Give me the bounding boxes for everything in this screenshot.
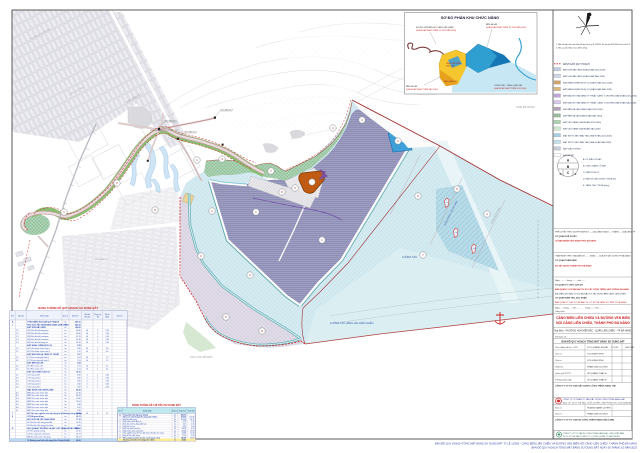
svg-text:MẶT NƯỚC NEO ĐẬU TÀU (GIAI ĐOẠ: MẶT NƯỚC NEO ĐẬU TÀU (GIAI ĐOẠN SAU 2030… [563, 141, 612, 144]
svg-text:ha: ha [65, 333, 67, 335]
svg-text:1: 1 [97, 386, 98, 388]
svg-text:(2022-2030): (2022-2030) [446, 66, 455, 68]
svg-text:ha: ha [65, 378, 67, 380]
svg-text:ha: ha [65, 351, 67, 353]
svg-text:0.7: 0.7 [106, 413, 109, 415]
svg-text:4.92: 4.92 [77, 407, 81, 409]
svg-text:MN4 Khu nước trước bến: MN4 Khu nước trước bến [27, 400, 48, 403]
svg-text:3: 3 [97, 336, 98, 338]
svg-text:0.1: 0.1 [106, 366, 109, 368]
svg-text:6.5: 6.5 [16, 404, 19, 406]
svg-text:Chủ trì: Chủ trì [555, 413, 562, 416]
svg-text:2.04: 2.04 [105, 330, 109, 332]
svg-text:Chủ trì: Chủ trì [555, 359, 562, 362]
svg-text:4.78: 4.78 [77, 344, 81, 347]
svg-text:47.27: 47.27 [76, 434, 81, 436]
svg-text:ha: ha [65, 392, 67, 394]
svg-text:9.48: 9.48 [77, 404, 81, 406]
svg-text:5: 5 [87, 380, 88, 382]
svg-text:5.4: 5.4 [16, 383, 19, 385]
svg-text:ĐẤT HÀNH CHÍNH DỊCH VỤ (GIAI Đ: ĐẤT HÀNH CHÍNH DỊCH VỤ (GIAI ĐOẠN 2022-2… [563, 82, 613, 85]
svg-text:ha: ha [65, 434, 67, 436]
svg-text:2: 2 [97, 360, 98, 362]
svg-text:86.38: 86.38 [76, 389, 81, 391]
svg-text:ĐẤT CÂY XANH CÁCH LY: ĐẤT CÂY XANH CÁCH LY [27, 371, 51, 374]
svg-text:2.66: 2.66 [77, 348, 81, 350]
svg-text:1.1: 1.1 [16, 330, 19, 332]
svg-text:SL2 Bến sà lan số 2: SL2 Bến sà lan số 2 [27, 368, 43, 371]
svg-text:2.21: 2.21 [77, 369, 81, 371]
svg-text:6.4: 6.4 [16, 401, 19, 403]
svg-text:0.05: 0.05 [105, 383, 109, 385]
svg-text:ĐẤT KHO BÃI CẢNG (GIAI ĐOẠN 20: ĐẤT KHO BÃI CẢNG (GIAI ĐOẠN 2022-2030) [563, 68, 606, 71]
svg-text:ha: ha [65, 425, 67, 427]
svg-text:Tỷ lệ (%): Tỷ lệ (%) [188, 409, 195, 412]
svg-text:ha: ha [65, 360, 67, 362]
svg-text:146.68: 146.68 [75, 427, 81, 430]
svg-text:3.2: 3.2 [16, 360, 19, 362]
svg-text:HC2 Khu hành chính cảng 2: HC2 Khu hành chính cảng 2 [27, 350, 50, 353]
svg-text:KB1 Khu kho bãi tổng hợp: KB1 Khu kho bãi tổng hợp [27, 329, 48, 332]
svg-text:A. KÝ HIỆU LÔ ĐẤT: A. KÝ HIỆU LÔ ĐẤT [583, 158, 602, 161]
svg-text:HC1 Khu hành chính cảng 1: HC1 Khu hành chính cảng 1 [27, 347, 50, 350]
svg-text:ĐẤT BẾN SÀ LAN: ĐẤT BẾN SÀ LAN [27, 362, 44, 365]
svg-text:3: 3 [97, 342, 98, 344]
svg-text:6.6: 6.6 [16, 407, 19, 409]
svg-text:IV. Đường ven biển nối cảng Li: IV. Đường ven biển nối cảng Liên Chiểu (… [27, 439, 69, 442]
svg-text:KT2 Khu hạ tầng kỹ thuật 2: KT2 Khu hạ tầng kỹ thuật 2 [27, 359, 49, 362]
svg-text:1.53: 1.53 [77, 360, 81, 362]
svg-text:1: 1 [97, 383, 98, 385]
svg-text:3: 3 [97, 330, 98, 332]
svg-text:CƠ QUAN TỔ CHỨC LẬP QH:: CƠ QUAN TỔ CHỨC LẬP QH: [555, 284, 584, 287]
svg-text:1.3: 1.3 [16, 336, 19, 338]
svg-text:Ghi chú: Ghi chú [117, 316, 123, 318]
svg-text:MẶT NƯỚC NEO ĐẬU TÀU (GIAI ĐOẠ: MẶT NƯỚC NEO ĐẬU TÀU (GIAI ĐOẠN 2022-203… [563, 134, 612, 137]
svg-text:60: 60 [86, 339, 88, 341]
svg-text:BẢNG THỐNG KÊ CHỈ TIÊU SỬ DỤNG: BẢNG THỐNG KÊ CHỈ TIÊU SỬ DỤNG ĐẤT [132, 404, 181, 407]
svg-text:B. CHỨC NĂNG LÔ ĐẤT: B. CHỨC NĂNG LÔ ĐẤT [583, 165, 607, 168]
svg-text:ĐƯỜNG VEN BIỂN NỐI CẢNG LIÊN C: ĐƯỜNG VEN BIỂN NỐI CẢNG LIÊN CHIỂU [416, 26, 454, 29]
svg-text:4.1: 4.1 [16, 366, 19, 368]
svg-text:ha: ha [65, 345, 67, 347]
svg-text:1: 1 [97, 369, 98, 371]
svg-text:3.6: 3.6 [106, 351, 109, 353]
svg-text:DK1 Đê kè chắn sóng phía Bắc: DK1 Đê kè chắn sóng phía Bắc [27, 421, 52, 424]
svg-text:BAN QUẢN LÝ CÁC DỰ ÁN ĐẦU TƯ C: BAN QUẢN LÝ CÁC DỰ ÁN ĐẦU TƯ CƠ SỞ HẠ TẦ… [555, 301, 627, 304]
svg-text:ha: ha [65, 410, 67, 412]
svg-text:40: 40 [86, 357, 88, 359]
svg-text:40.36: 40.36 [76, 339, 81, 341]
svg-text:CÔNG TY CP TƯ VẤN XD CÔNG TRÌN: CÔNG TY CP TƯ VẤN XD CÔNG TRÌNH HÀNG HẢI… [563, 432, 624, 435]
svg-text:UỶ BAN NHÂN DÂN THÀNH PHỐ ĐÀ N: UỶ BAN NHÂN DÂN THÀNH PHỐ ĐÀ NẴNG [555, 240, 597, 243]
svg-text:15.86: 15.86 [76, 398, 81, 400]
svg-text:KB4 Khu kho bãi container: KB4 Khu kho bãi container [27, 338, 49, 341]
svg-text:ha: ha [65, 398, 67, 400]
svg-text:2. Hệ cao độ: Nhà nước (Hòn Dấ: 2. Hệ cao độ: Nhà nước (Hòn Dấu). [556, 47, 588, 50]
svg-text:BẾN SÀ LAN: BẾN SÀ LAN [486, 23, 498, 26]
svg-text:Chủ trì: Chủ trì [555, 407, 562, 410]
svg-text:5.2: 5.2 [16, 378, 19, 380]
svg-text:ha: ha [65, 431, 67, 433]
svg-text:40: 40 [86, 360, 88, 362]
svg-text:E: E [575, 172, 577, 176]
svg-text:CX3 Cây xanh 3: CX3 Cây xanh 3 [27, 380, 40, 382]
svg-text:MN1 Khu nước trước bến: MN1 Khu nước trước bến [27, 391, 48, 394]
svg-text:CX Khu cây xanh cảnh quan: CX Khu cây xanh cảnh quan [27, 433, 50, 436]
svg-text:5: 5 [87, 386, 88, 388]
svg-text:MN6 Khu nước trước bến: MN6 Khu nước trước bến [27, 406, 48, 409]
svg-text:1.2: 1.2 [106, 357, 109, 359]
svg-text:2: 2 [97, 357, 98, 359]
svg-text:1.2: 1.2 [106, 360, 109, 362]
svg-text:(GIAI ĐOẠN PHÁT TRIỂN 2022-203: (GIAI ĐOẠN PHÁT TRIỂN 2022-2030) [494, 87, 527, 90]
svg-text:ha: ha [65, 366, 67, 368]
svg-text:21.76: 21.76 [76, 392, 81, 394]
svg-text:2.2: 2.2 [16, 351, 19, 353]
svg-text:ĐẤT GIAO THÔNG: ĐẤT GIAO THÔNG [563, 148, 581, 151]
svg-text:Thiết kế: Thiết kế [555, 366, 564, 369]
svg-text:RANH GIỚI QUY HOẠCH: RANH GIỚI QUY HOẠCH [563, 63, 590, 66]
svg-text:XD (%): XD (%) [84, 317, 90, 319]
svg-text:ha: ha [65, 389, 67, 391]
svg-text:ĐẠI DIỆN CHỦ ĐẦU TƯ DỰ ÁN ĐẦU: ĐẠI DIỆN CHỦ ĐẦU TƯ DỰ ÁN ĐẦU TƯ XÂY DỰN… [555, 293, 627, 296]
svg-text:ĐƯỜNG NGUYỄN VĂN CỪ: ĐƯỜNG NGUYỄN VĂN CỪ [150, 129, 178, 132]
svg-text:0.05: 0.05 [105, 380, 109, 382]
svg-text:56.11: 56.11 [76, 416, 80, 418]
svg-text:CẢNG BIỂN LIÊN CHIỂU VÀ ĐƯỜNG: CẢNG BIỂN LIÊN CHIỂU VÀ ĐƯỜNG VEN BIỂN [556, 315, 630, 320]
svg-text:2.04: 2.04 [105, 336, 109, 338]
svg-text:ha: ha [65, 383, 67, 385]
svg-text:1: 1 [97, 378, 98, 380]
svg-text:5: 5 [87, 383, 88, 385]
svg-text:ha: ha [65, 363, 67, 365]
svg-text:KHU QUẢNG TRƯỜNG VÀ ĐẤT CÂY XA: KHU QUẢNG TRƯỜNG VÀ ĐẤT CÂY XANH NGOÀI C… [27, 427, 79, 430]
svg-text:0.05: 0.05 [105, 375, 109, 377]
svg-text:CẢNG LIÊN CHIỂU: CẢNG LIÊN CHIỂU [446, 62, 462, 65]
svg-text:Tầng cao: Tầng cao [94, 313, 101, 316]
svg-text:MN Khu mặt nước cảnh quan: MN Khu mặt nước cảnh quan [27, 436, 51, 439]
svg-text:5.5: 5.5 [16, 386, 19, 388]
svg-text:Chủ nhiệm đồ án KTS: Chủ nhiệm đồ án KTS [555, 346, 578, 349]
svg-text:3.32: 3.32 [77, 386, 81, 388]
svg-text:D: D [560, 172, 562, 176]
svg-text:CÔNG TY CP TƯ VẤN XD CÔNG TRÌN: CÔNG TY CP TƯ VẤN XD CÔNG TRÌNH HÀNG HẢI… [555, 419, 614, 422]
svg-text:1: 1 [97, 375, 98, 377]
svg-text:KB2 Khu kho bãi container: KB2 Khu kho bãi container [27, 332, 49, 335]
svg-text:Diện tích: Diện tích [179, 409, 186, 412]
svg-text:NỐI CẢNG LIÊN CHIỂU, THÀNH PHỐ: NỐI CẢNG LIÊN CHIỂU, THÀNH PHỐ ĐÀ NẴNG [556, 320, 630, 325]
svg-text:STT: STT [11, 316, 14, 318]
svg-text:10.45: 10.45 [76, 422, 81, 424]
svg-text:17.10: 17.10 [76, 419, 81, 421]
svg-text:3: 3 [97, 339, 98, 341]
svg-text:PHẠM VĂN CƯƠNG: PHẠM VĂN CƯƠNG [587, 366, 608, 369]
svg-text:KHU VỰC XÂY DỰNG BẾN CẢNG LIÊN: KHU VỰC XÂY DỰNG BẾN CẢNG LIÊN CHIỂU [27, 323, 69, 326]
svg-text:4.2: 4.2 [16, 369, 19, 371]
svg-text:ĐẤT ĐẦU MỐI HẠ TẦNG KỸ THUẬT C: ĐẤT ĐẦU MỐI HẠ TẦNG KỸ THUẬT CẢNG T.CHUY… [563, 101, 637, 104]
svg-text:SỞ XÂY DỰNG THÀNH PHỐ ĐÀ NẴNG: SỞ XÂY DỰNG THÀNH PHỐ ĐÀ NẴNG [555, 265, 592, 268]
svg-text:CÔNG TY CỔ PHẦN TƯ VẤN XÂY DỰN: CÔNG TY CỔ PHẦN TƯ VẤN XÂY DỰNG CÔNG TRÌ… [563, 398, 625, 401]
svg-text:2.04: 2.04 [105, 339, 109, 341]
svg-text:Quản lý KT P.TP: Quản lý KT P.TP [555, 372, 572, 375]
svg-text:ha: ha [65, 422, 67, 424]
svg-text:Đơn vị: Đơn vị [173, 410, 179, 412]
svg-text:18.42: 18.42 [76, 395, 81, 397]
svg-text:5: 5 [87, 378, 88, 380]
svg-text:Hệ số: Hệ số [105, 313, 109, 316]
svg-text:1.5: 1.5 [16, 342, 19, 344]
svg-text:DK2 Đê kè chắn sóng phía Nam: DK2 Đê kè chắn sóng phía Nam [27, 424, 53, 427]
svg-text:18.16: 18.16 [76, 372, 81, 374]
svg-text:3: 3 [97, 333, 98, 335]
svg-text:ha: ha [65, 386, 67, 388]
svg-text:1.2: 1.2 [16, 333, 19, 335]
svg-text:3.82: 3.82 [77, 378, 81, 380]
svg-text:40: 40 [86, 348, 88, 350]
svg-text:PHÊ DUYỆT THEO QUYẾT ĐỊNH SỐ .: PHÊ DUYỆT THEO QUYẾT ĐỊNH SỐ ....../QĐ-U… [555, 231, 636, 234]
svg-text:60: 60 [86, 336, 88, 338]
svg-text:433.06: 433.06 [75, 323, 81, 326]
svg-text:ĐẤT BẾN SÀ LAN (GIAI ĐOẠN 2022: ĐẤT BẾN SÀ LAN (GIAI ĐOẠN 2022-2030) [563, 108, 603, 111]
svg-text:12.64: 12.64 [76, 401, 81, 403]
svg-text:450.16: 450.16 [75, 320, 81, 323]
svg-text:2.12: 2.12 [77, 351, 81, 353]
svg-text:53.08: 53.08 [76, 413, 81, 415]
svg-text:ha: ha [65, 419, 67, 421]
svg-text:Thành phần: Thành phần [143, 409, 152, 412]
svg-text:Công trình:: Công trình: [555, 310, 565, 313]
svg-text:KHU VỰC ĐÊ, KÈ CHẮN SÓNG: KHU VỰC ĐÊ, KÈ CHẮN SÓNG [27, 418, 55, 421]
svg-text:NC Khu vực nghiên cứu xây dựn: NC Khu vực nghiên cứu xây dựng khu liên … [27, 412, 82, 415]
svg-text:2.21: 2.21 [77, 366, 81, 368]
svg-text:ĐẤT CÂY XANH (GIAI ĐOẠN SAU 20: ĐẤT CÂY XANH (GIAI ĐOẠN SAU 2030) [563, 128, 601, 131]
svg-text:CX1 Cây xanh 1: CX1 Cây xanh 1 [27, 375, 40, 377]
svg-text:LƯU QUANG KHOÁT C.TỊCH: LƯU QUANG KHOÁT C.TỊCH [587, 346, 619, 349]
svg-text:LƯU ĐÌNH VINH: LƯU ĐÌNH VINH [587, 359, 604, 362]
svg-text:ĐẤT HÀNH CHÍNH DỊCH VỤ (GIAI Đ: ĐẤT HÀNH CHÍNH DỊCH VỤ (GIAI ĐOẠN SAU 20… [563, 88, 612, 91]
svg-text:4.06: 4.06 [77, 375, 81, 377]
svg-text:ha: ha [65, 357, 67, 359]
svg-text:NÚT GIAO SỐ 3: NÚT GIAO SỐ 3 [185, 130, 198, 133]
svg-text:ĐẤT ĐẦU MỐI HẠ TẦNG KỸ THUẬT C: ĐẤT ĐẦU MỐI HẠ TẦNG KỸ THUẬT CẢNG T.CHUY… [563, 95, 637, 98]
svg-text:CÔNG TY CP TƯ VẤN XÂY DỰNG CÔN: CÔNG TY CP TƯ VẤN XÂY DỰNG CÔNG TRÌNH HÀ… [555, 385, 616, 388]
svg-text:QT Khu quảng trường: QT Khu quảng trường [27, 430, 45, 433]
svg-text:9: 9 [97, 348, 98, 350]
svg-text:60: 60 [86, 333, 88, 335]
svg-text:ha: ha [65, 404, 67, 406]
svg-text:6.2: 6.2 [16, 395, 19, 397]
svg-text:ha: ha [65, 428, 67, 430]
svg-text:0.1: 0.1 [106, 369, 109, 371]
svg-text:ha: ha [65, 354, 67, 356]
svg-text:ha: ha [65, 407, 67, 409]
svg-text:CX5 Cây xanh 5: CX5 Cây xanh 5 [27, 386, 40, 388]
svg-text:Đường ven biển nối cảng Liên C: Đường ven biển nối cảng Liên Chiểu [123, 439, 154, 442]
svg-text:ha: ha [65, 336, 67, 338]
svg-text:ha: ha [174, 440, 176, 442]
svg-text:STT: STT [118, 410, 121, 412]
svg-text:GHI CHÚ: GHI CHÚ [625, 346, 635, 349]
svg-text:CƠ QUAN PHÊ DUYỆT:: CƠ QUAN PHÊ DUYỆT: [555, 235, 577, 238]
svg-text:6.65: 6.65 [77, 425, 81, 427]
svg-text:Tên bản vẽ:: Tên bản vẽ: [555, 336, 567, 339]
svg-text:3.40: 3.40 [77, 383, 81, 385]
svg-text:3.56: 3.56 [77, 380, 81, 382]
svg-text:21.10: 21.10 [76, 431, 81, 433]
svg-text:P.Tổng Giám đốc: P.Tổng Giám đốc [555, 379, 573, 382]
svg-text:KT1 Khu hạ tầng kỹ thuật 1: KT1 Khu hạ tầng kỹ thuật 1 [27, 356, 49, 359]
svg-text:BAN QUẢN LÝ DỰ ÁN ĐẦU TƯ XD CÁ: BAN QUẢN LÝ DỰ ÁN ĐẦU TƯ XD CÁC CÔNG TRÌ… [555, 288, 630, 291]
svg-text:6.1: 6.1 [16, 392, 19, 394]
svg-text:10: 10 [86, 366, 88, 368]
svg-text:Ngày ........... tháng .......: Ngày ........... tháng ........ năm ....… [555, 279, 586, 282]
svg-text:5: 5 [87, 375, 88, 377]
svg-text:BẢN ĐỒ QUY HOẠCH TỔNG MẶT BẰNG: BẢN ĐỒ QUY HOẠCH TỔNG MẶT BẰNG SỬ DỤNG Đ… [561, 341, 625, 344]
svg-text:LÊ QUANG THẠCH: LÊ QUANG THẠCH [587, 372, 607, 375]
svg-text:1. Bản đồ lập trên nền bản đồ: 1. Bản đồ lập trên nền bản đồ địa hình t… [556, 43, 631, 46]
svg-text:HOÀNG MẠNH QUYỀN: HOÀNG MẠNH QUYỀN [587, 407, 611, 410]
svg-text:NÚT GIAO SỐ 1: NÚT GIAO SỐ 1 [165, 119, 178, 122]
svg-text:3: 3 [97, 413, 98, 415]
svg-text:MN3 Khu nước trước bến: MN3 Khu nước trước bến [27, 397, 48, 400]
svg-text:1.4: 1.4 [16, 339, 19, 341]
svg-text:ha: ha [65, 330, 67, 332]
svg-text:(GIAI ĐOẠN PHÁT TRIỂN SAU 2030: (GIAI ĐOẠN PHÁT TRIỂN SAU 2030) [406, 88, 438, 91]
svg-text:ĐẤT BẾN SÀ LAN (GIAI ĐOẠN SAU: ĐẤT BẾN SÀ LAN (GIAI ĐOẠN SAU 2030) [563, 115, 602, 118]
svg-text:1: 1 [97, 366, 98, 368]
svg-text:8: 8 [12, 416, 13, 418]
svg-text:NÚT GIAO SỐ 2: NÚT GIAO SỐ 2 [221, 108, 234, 111]
svg-text:LƯU ĐÌNH VINH: LƯU ĐÌNH VINH [587, 353, 604, 356]
svg-text:ha: ha [65, 380, 67, 382]
svg-text:PHẠM VĂN CƯƠNG: PHẠM VĂN CƯƠNG [587, 413, 608, 416]
svg-text:CƠ QUAN THẨM ĐỊNH:: CƠ QUAN THẨM ĐỊNH: [555, 259, 577, 262]
svg-text:E. TẦNG CAO TỐI ĐA (tầng): E. TẦNG CAO TỐI ĐA (tầng) [583, 184, 610, 187]
svg-text:ha: ha [65, 369, 67, 371]
svg-text:Mật độ: Mật độ [85, 313, 90, 316]
svg-text:ha: ha [65, 342, 67, 344]
svg-text:3.6: 3.6 [106, 348, 109, 350]
svg-text:ha: ha [65, 327, 67, 329]
svg-text:ĐẤT CÂY XANH (GIAI ĐOẠN 2022-2: ĐẤT CÂY XANH (GIAI ĐOẠN 2022-2030) [563, 121, 601, 124]
svg-text:ha: ha [65, 348, 67, 350]
svg-text:2.04: 2.04 [105, 342, 109, 344]
svg-text:C. DIỆN TÍCH LÔ: C. DIỆN TÍCH LÔ [583, 171, 600, 174]
svg-text:2.1: 2.1 [16, 348, 19, 350]
svg-text:LÊ QUANG THẠCH: LÊ QUANG THẠCH [587, 379, 607, 382]
svg-text:ha: ha [65, 413, 67, 415]
svg-text:SL1 Bến sà lan số 1: SL1 Bến sà lan số 1 [27, 365, 43, 368]
svg-text:3.07: 3.07 [77, 354, 81, 356]
svg-text:60: 60 [86, 330, 88, 332]
svg-text:6.3: 6.3 [16, 398, 19, 400]
svg-text:KHU DÂN CƯ: KHU DÂN CƯ [95, 258, 108, 261]
svg-text:1.54: 1.54 [77, 357, 81, 359]
svg-text:Chủ trì: Chủ trì [555, 353, 562, 356]
svg-text:KB3 Khu kho bãi container: KB3 Khu kho bãi container [27, 335, 49, 338]
svg-text:Địa điểm: PHƯỜNG HOÀ HIỆP BẮC: Địa điểm: PHƯỜNG HOÀ HIỆP BẮC - QUẬN LIÊ… [555, 330, 632, 333]
svg-text:ha: ha [65, 372, 67, 374]
svg-text:CX2 Cây xanh 2: CX2 Cây xanh 2 [27, 378, 40, 380]
svg-text:THẨM ĐỊNH THEO VĂN BẢN SỐ ....: THẨM ĐỊNH THEO VĂN BẢN SỐ ....... NGÀY .… [555, 255, 631, 258]
svg-text:37.90: 37.90 [76, 342, 81, 344]
svg-text:60: 60 [86, 342, 88, 344]
svg-text:0.05: 0.05 [105, 386, 109, 388]
svg-text:ha: ha [65, 395, 67, 397]
svg-text:TỔNG DIỆN TÍCH LẬP QUY HOẠCH: TỔNG DIỆN TÍCH LẬP QUY HOẠCH [27, 320, 59, 323]
svg-text:Diện tích: Diện tích [72, 315, 79, 318]
svg-text:ha: ha [65, 321, 67, 323]
svg-text:LUỒNG TÀU - VŨNG QUAY TÀU: LUỒNG TÀU - VŨNG QUAY TÀU [494, 84, 523, 87]
svg-text:ha: ha [65, 401, 67, 403]
svg-text:ha: ha [65, 375, 67, 377]
svg-text:MN2 Khu nước trước bến: MN2 Khu nước trước bến [27, 394, 48, 397]
svg-text:MN5 Khu nước trước bến: MN5 Khu nước trước bến [27, 403, 48, 406]
svg-text:SỐ 14 VÕ THỊ SÁU, P. MÁY TƠ, Q: SỐ 14 VÕ THỊ SÁU, P. MÁY TƠ, Q. NGÔ QUYỀ… [563, 435, 620, 438]
svg-text:ĐẤT HÀNH CHÍNH DỊCH VỤ: ĐẤT HÀNH CHÍNH DỊCH VỤ [27, 344, 52, 347]
svg-text:Đơn vị: Đơn vị [63, 316, 69, 318]
svg-text:5.1: 5.1 [16, 375, 19, 377]
svg-text:44.36: 44.36 [76, 330, 81, 332]
svg-text:41.78: 41.78 [76, 336, 81, 338]
svg-text:BẾN SÀ LAN: BẾN SÀ LAN [406, 85, 418, 88]
svg-text:Ký hiệu: Ký hiệu [18, 316, 24, 318]
svg-text:9: 9 [97, 351, 98, 353]
svg-text:CƠ QUAN KIỂM TRA, XÁC NHẬN:: CƠ QUAN KIỂM TRA, XÁC NHẬN: [555, 297, 587, 300]
svg-text:2.04: 2.04 [105, 333, 109, 335]
svg-text:CX4 Cây xanh 4: CX4 Cây xanh 4 [27, 383, 40, 385]
svg-text:Ngày ..... tháng ..... năm ...: Ngày ..... tháng ..... năm .......... th… [555, 307, 603, 310]
svg-text:ha: ha [65, 324, 67, 326]
svg-text:6.7: 6.7 [16, 410, 19, 412]
svg-text:Thành phần: Thành phần [40, 315, 49, 318]
svg-text:42.42: 42.42 [182, 439, 186, 442]
svg-text:SƠ ĐỒ PHÂN KHU CHỨC NĂNG: SƠ ĐỒ PHÂN KHU CHỨC NĂNG [441, 15, 499, 20]
svg-text:(GIAI ĐOẠN PHÁT TRIỂN TỪ 2022: (GIAI ĐOẠN PHÁT TRIỂN TỪ 2022 ĐẾN 2030) [416, 29, 456, 32]
svg-text:(GIAI ĐOẠN PHÁT TRIỂN TỪ 2022: (GIAI ĐOẠN PHÁT TRIỂN TỪ 2022 ĐẾN 2030) [486, 26, 526, 29]
svg-text:3.30: 3.30 [77, 410, 81, 412]
svg-text:ĐẤT ĐẦU MỐI HẠ TẦNG KỸ THUẬT: ĐẤT ĐẦU MỐI HẠ TẦNG KỸ THUẬT [27, 353, 60, 356]
svg-text:1: 1 [97, 380, 98, 382]
svg-text:ĐẤT KHO BÃI CẢNG (GIAI ĐOẠN SA: ĐẤT KHO BÃI CẢNG (GIAI ĐOẠN SAU 2030) [563, 75, 605, 78]
svg-text:206.06: 206.06 [75, 327, 81, 329]
svg-text:ha: ha [65, 416, 67, 418]
svg-text:ADD: SỐ 14 VÕ THỊ SÁU - NGÔ QU: ADD: SỐ 14 VÕ THỊ SÁU - NGÔ QUYỀN - HẢI … [563, 402, 632, 405]
svg-text:3.1: 3.1 [16, 357, 19, 359]
svg-text:5.3: 5.3 [16, 380, 19, 382]
svg-text:MN7 Khu nước trước bến: MN7 Khu nước trước bến [27, 409, 48, 412]
svg-text:D. MẬT ĐỘ XÂY DỰNG TỐI ĐA (%): D. MẬT ĐỘ XÂY DỰNG TỐI ĐA (%) [583, 178, 616, 181]
svg-text:40: 40 [86, 351, 88, 353]
svg-text:MẶT NƯỚC KHU NƯỚC BẾN: MẶT NƯỚC KHU NƯỚC BẾN [27, 388, 54, 391]
svg-text:ha: ha [65, 339, 67, 341]
svg-text:7: 7 [12, 413, 13, 415]
svg-text:40: 40 [86, 413, 88, 415]
svg-text:KB5 Khu kho bãi hàng rời: KB5 Khu kho bãi hàng rời [27, 341, 48, 344]
svg-text:0.05: 0.05 [105, 378, 109, 380]
svg-text:4.42: 4.42 [77, 362, 81, 365]
svg-text:ĐẤT KHO BÃI CẢNG: ĐẤT KHO BÃI CẢNG [27, 326, 46, 329]
svg-text:42.66: 42.66 [76, 333, 81, 335]
svg-text:GT Đất giao thông: GT Đất giao thông [27, 415, 44, 418]
svg-text:10: 10 [86, 369, 88, 371]
svg-text:42.42: 42.42 [76, 439, 81, 442]
